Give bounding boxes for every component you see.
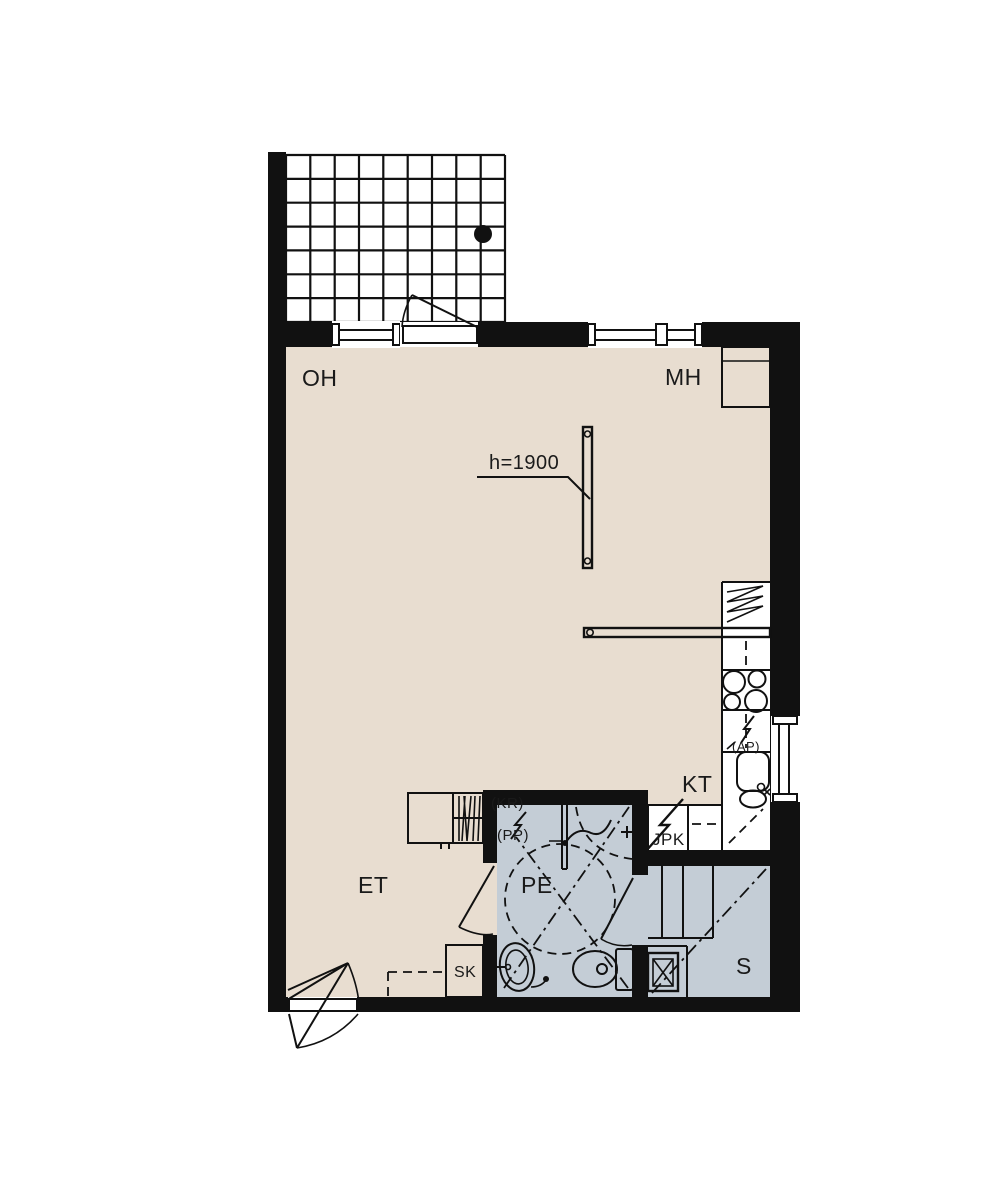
room-label-bathroom: PE [521, 874, 553, 897]
room-label-living-room: OH [302, 367, 338, 390]
window-living-room [332, 321, 400, 348]
sauna-wall-top [632, 851, 770, 866]
sauna-stove [648, 953, 678, 991]
floor-plan-drawing [0, 0, 1004, 1200]
window-bedroom [588, 321, 702, 348]
balcony-tile-grid [286, 155, 505, 322]
floor-drain-dot [474, 225, 492, 243]
room-label-bedroom: MH [665, 366, 702, 389]
floor-plan: OH MH h=1900 KT ET PE S SK JPK (KR) (PP)… [0, 0, 1004, 1200]
room-label-kitchen: KT [682, 773, 712, 796]
room-label-sauna: S [736, 955, 752, 978]
appliance-label-ap: (AP) [732, 740, 760, 753]
floor-areas [286, 347, 770, 997]
appliance-label-jpk: JPK [652, 831, 685, 848]
room-label-hallway: ET [358, 874, 388, 897]
appliance-label-pp: (PP) [497, 828, 529, 843]
appliance-label-kr: (KR) [491, 796, 524, 811]
window-kitchen [771, 716, 800, 802]
closet-label-sk: SK [454, 965, 476, 981]
height-annotation: h=1900 [489, 453, 559, 473]
